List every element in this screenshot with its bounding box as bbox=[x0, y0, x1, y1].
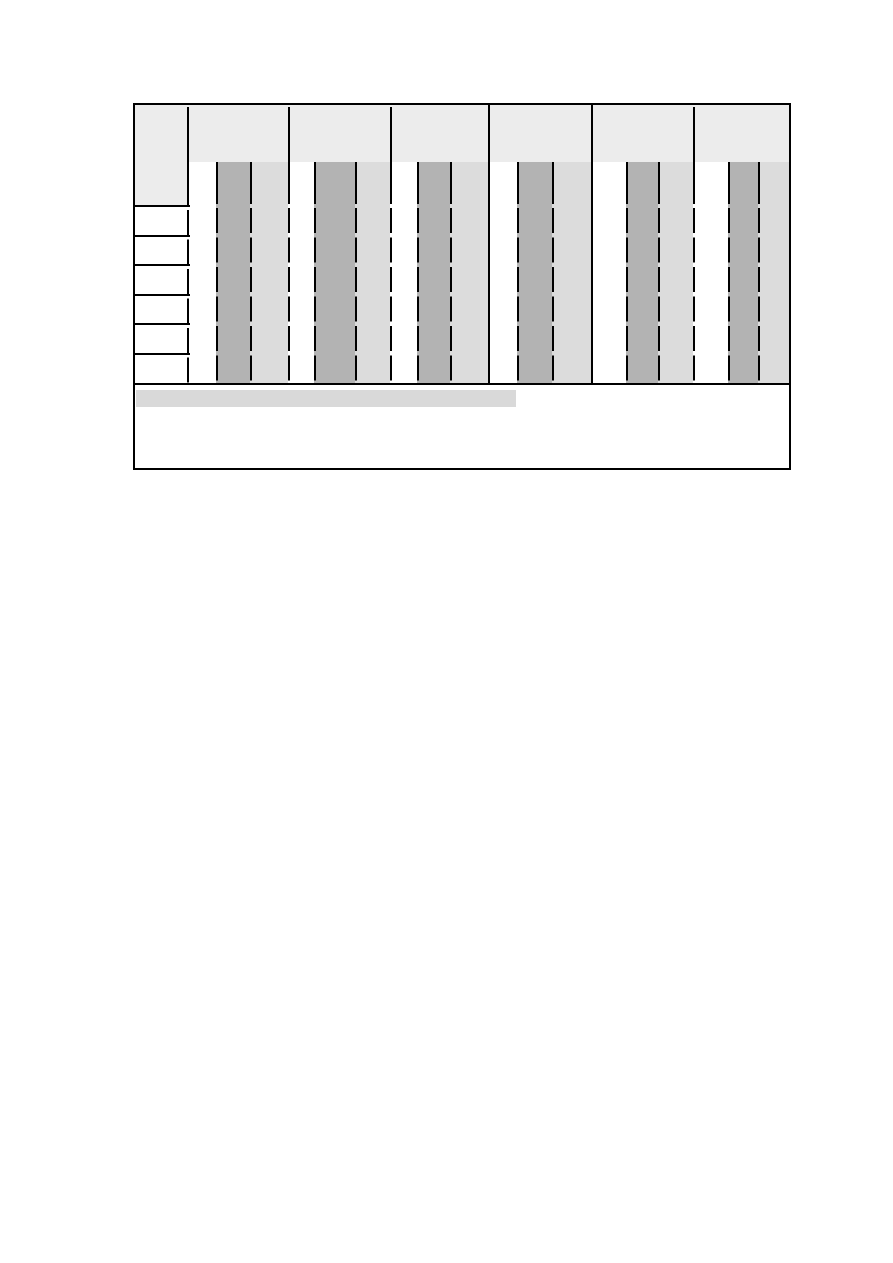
dark-column-bar-group-4 bbox=[517, 162, 552, 384]
dark-column-bar-group-2 bbox=[314, 162, 355, 384]
row-divider-line bbox=[133, 294, 190, 296]
header-divider bbox=[693, 107, 695, 162]
figure-border-top bbox=[133, 103, 791, 105]
column-border-dashed bbox=[626, 162, 628, 383]
figure-border-left bbox=[133, 103, 135, 470]
document-page bbox=[0, 0, 893, 1263]
column-border-dashed bbox=[517, 162, 519, 383]
group-divider-solid bbox=[591, 103, 593, 385]
column-border-dashed bbox=[216, 162, 218, 383]
column-border-dashed bbox=[250, 162, 252, 383]
column-border-dashed bbox=[693, 162, 695, 383]
caption-highlight-bar bbox=[136, 390, 516, 407]
stub-row bbox=[133, 324, 187, 354]
column-border-dashed bbox=[552, 162, 554, 383]
group-divider-solid bbox=[488, 103, 490, 385]
stub-header-cell bbox=[133, 103, 187, 206]
dark-column-bar-group-1 bbox=[216, 162, 250, 384]
row-divider-line bbox=[133, 235, 190, 237]
column-border-dashed bbox=[417, 162, 419, 383]
column-border-dashed bbox=[390, 162, 392, 383]
table-figure bbox=[133, 103, 791, 470]
row-divider-line bbox=[133, 353, 190, 355]
light-column-bar-group-2 bbox=[355, 162, 390, 384]
figure-border-bottom bbox=[133, 468, 791, 470]
column-border-dashed bbox=[450, 162, 452, 383]
light-column-bar-group-4 bbox=[552, 162, 591, 384]
stub-row bbox=[133, 354, 187, 384]
stub-row bbox=[133, 206, 187, 236]
row-divider-line bbox=[133, 205, 190, 207]
stub-row bbox=[133, 265, 187, 295]
stub-divider bbox=[187, 107, 189, 206]
dark-column-bar-group-6 bbox=[728, 162, 758, 384]
light-column-bar-group-5 bbox=[658, 162, 693, 384]
stub-row bbox=[133, 236, 187, 266]
row-divider-line bbox=[133, 264, 190, 266]
column-border-dashed bbox=[288, 162, 290, 383]
stub-row bbox=[133, 295, 187, 325]
header-divider bbox=[288, 107, 290, 162]
light-column-bar-group-6 bbox=[758, 162, 791, 384]
header-divider bbox=[390, 107, 392, 162]
column-border-dashed bbox=[728, 162, 730, 383]
column-border-dashed bbox=[314, 162, 316, 383]
light-column-bar-group-3 bbox=[450, 162, 488, 384]
figure-border-right bbox=[789, 103, 791, 470]
dark-column-bar-group-5 bbox=[626, 162, 658, 384]
stub-column-border-dashed bbox=[187, 210, 189, 383]
table-bottom-border bbox=[133, 383, 791, 385]
column-border-dashed bbox=[758, 162, 760, 383]
light-column-bar-group-1 bbox=[250, 162, 288, 384]
row-divider-line bbox=[133, 323, 190, 325]
column-border-dashed bbox=[658, 162, 660, 383]
dark-column-bar-group-3 bbox=[417, 162, 450, 384]
column-border-dashed bbox=[355, 162, 357, 383]
